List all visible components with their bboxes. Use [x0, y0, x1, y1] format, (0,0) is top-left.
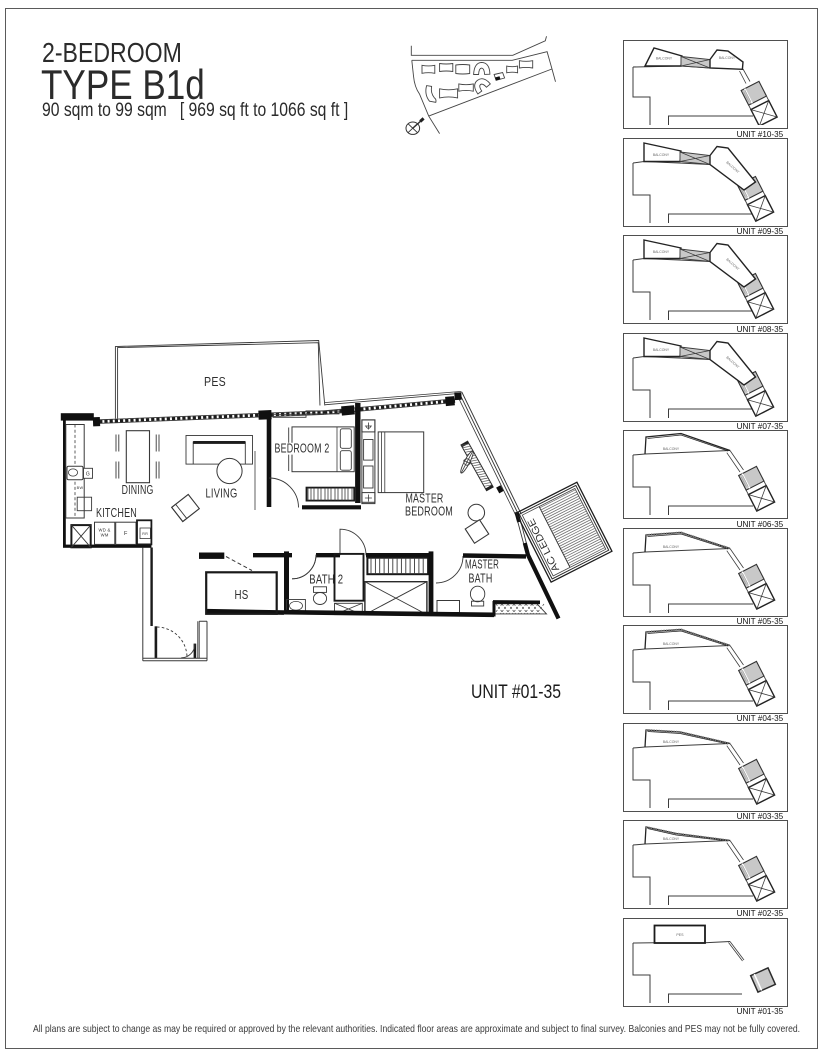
svg-text:LIVING: LIVING — [206, 487, 238, 501]
svg-text:BALCONY: BALCONY — [663, 642, 680, 646]
svg-text:BATH: BATH — [469, 572, 493, 586]
svg-text:G: G — [86, 472, 90, 478]
svg-text:DINING: DINING — [122, 483, 154, 497]
svg-text:F: F — [124, 531, 128, 537]
svg-text:BATH 2: BATH 2 — [309, 573, 343, 587]
svg-text:BEDROOM: BEDROOM — [405, 504, 453, 519]
svg-text:MASTER: MASTER — [465, 558, 499, 572]
svg-text:RR: RR — [142, 532, 148, 536]
svg-text:KITCHEN: KITCHEN — [96, 506, 137, 520]
svg-text:PES: PES — [676, 933, 684, 937]
svg-text:WM: WM — [101, 533, 109, 538]
svg-text:PES: PES — [204, 375, 226, 389]
svg-text:BALCONY: BALCONY — [663, 447, 680, 451]
svg-text:BALCONY: BALCONY — [663, 837, 680, 841]
svg-text:BEDROOM 2: BEDROOM 2 — [275, 442, 330, 456]
svg-text:BALCONY: BALCONY — [663, 545, 680, 549]
svg-text:HS: HS — [235, 588, 249, 602]
svg-text:BALCONY: BALCONY — [653, 250, 670, 254]
svg-text:BALCONY: BALCONY — [656, 57, 673, 61]
svg-text:BALCONY: BALCONY — [719, 56, 736, 60]
svg-text:BALCONY: BALCONY — [653, 153, 670, 157]
svg-text:BW: BW — [77, 486, 84, 490]
svg-text:BALCONY: BALCONY — [653, 348, 670, 352]
svg-text:BALCONY: BALCONY — [663, 740, 680, 744]
